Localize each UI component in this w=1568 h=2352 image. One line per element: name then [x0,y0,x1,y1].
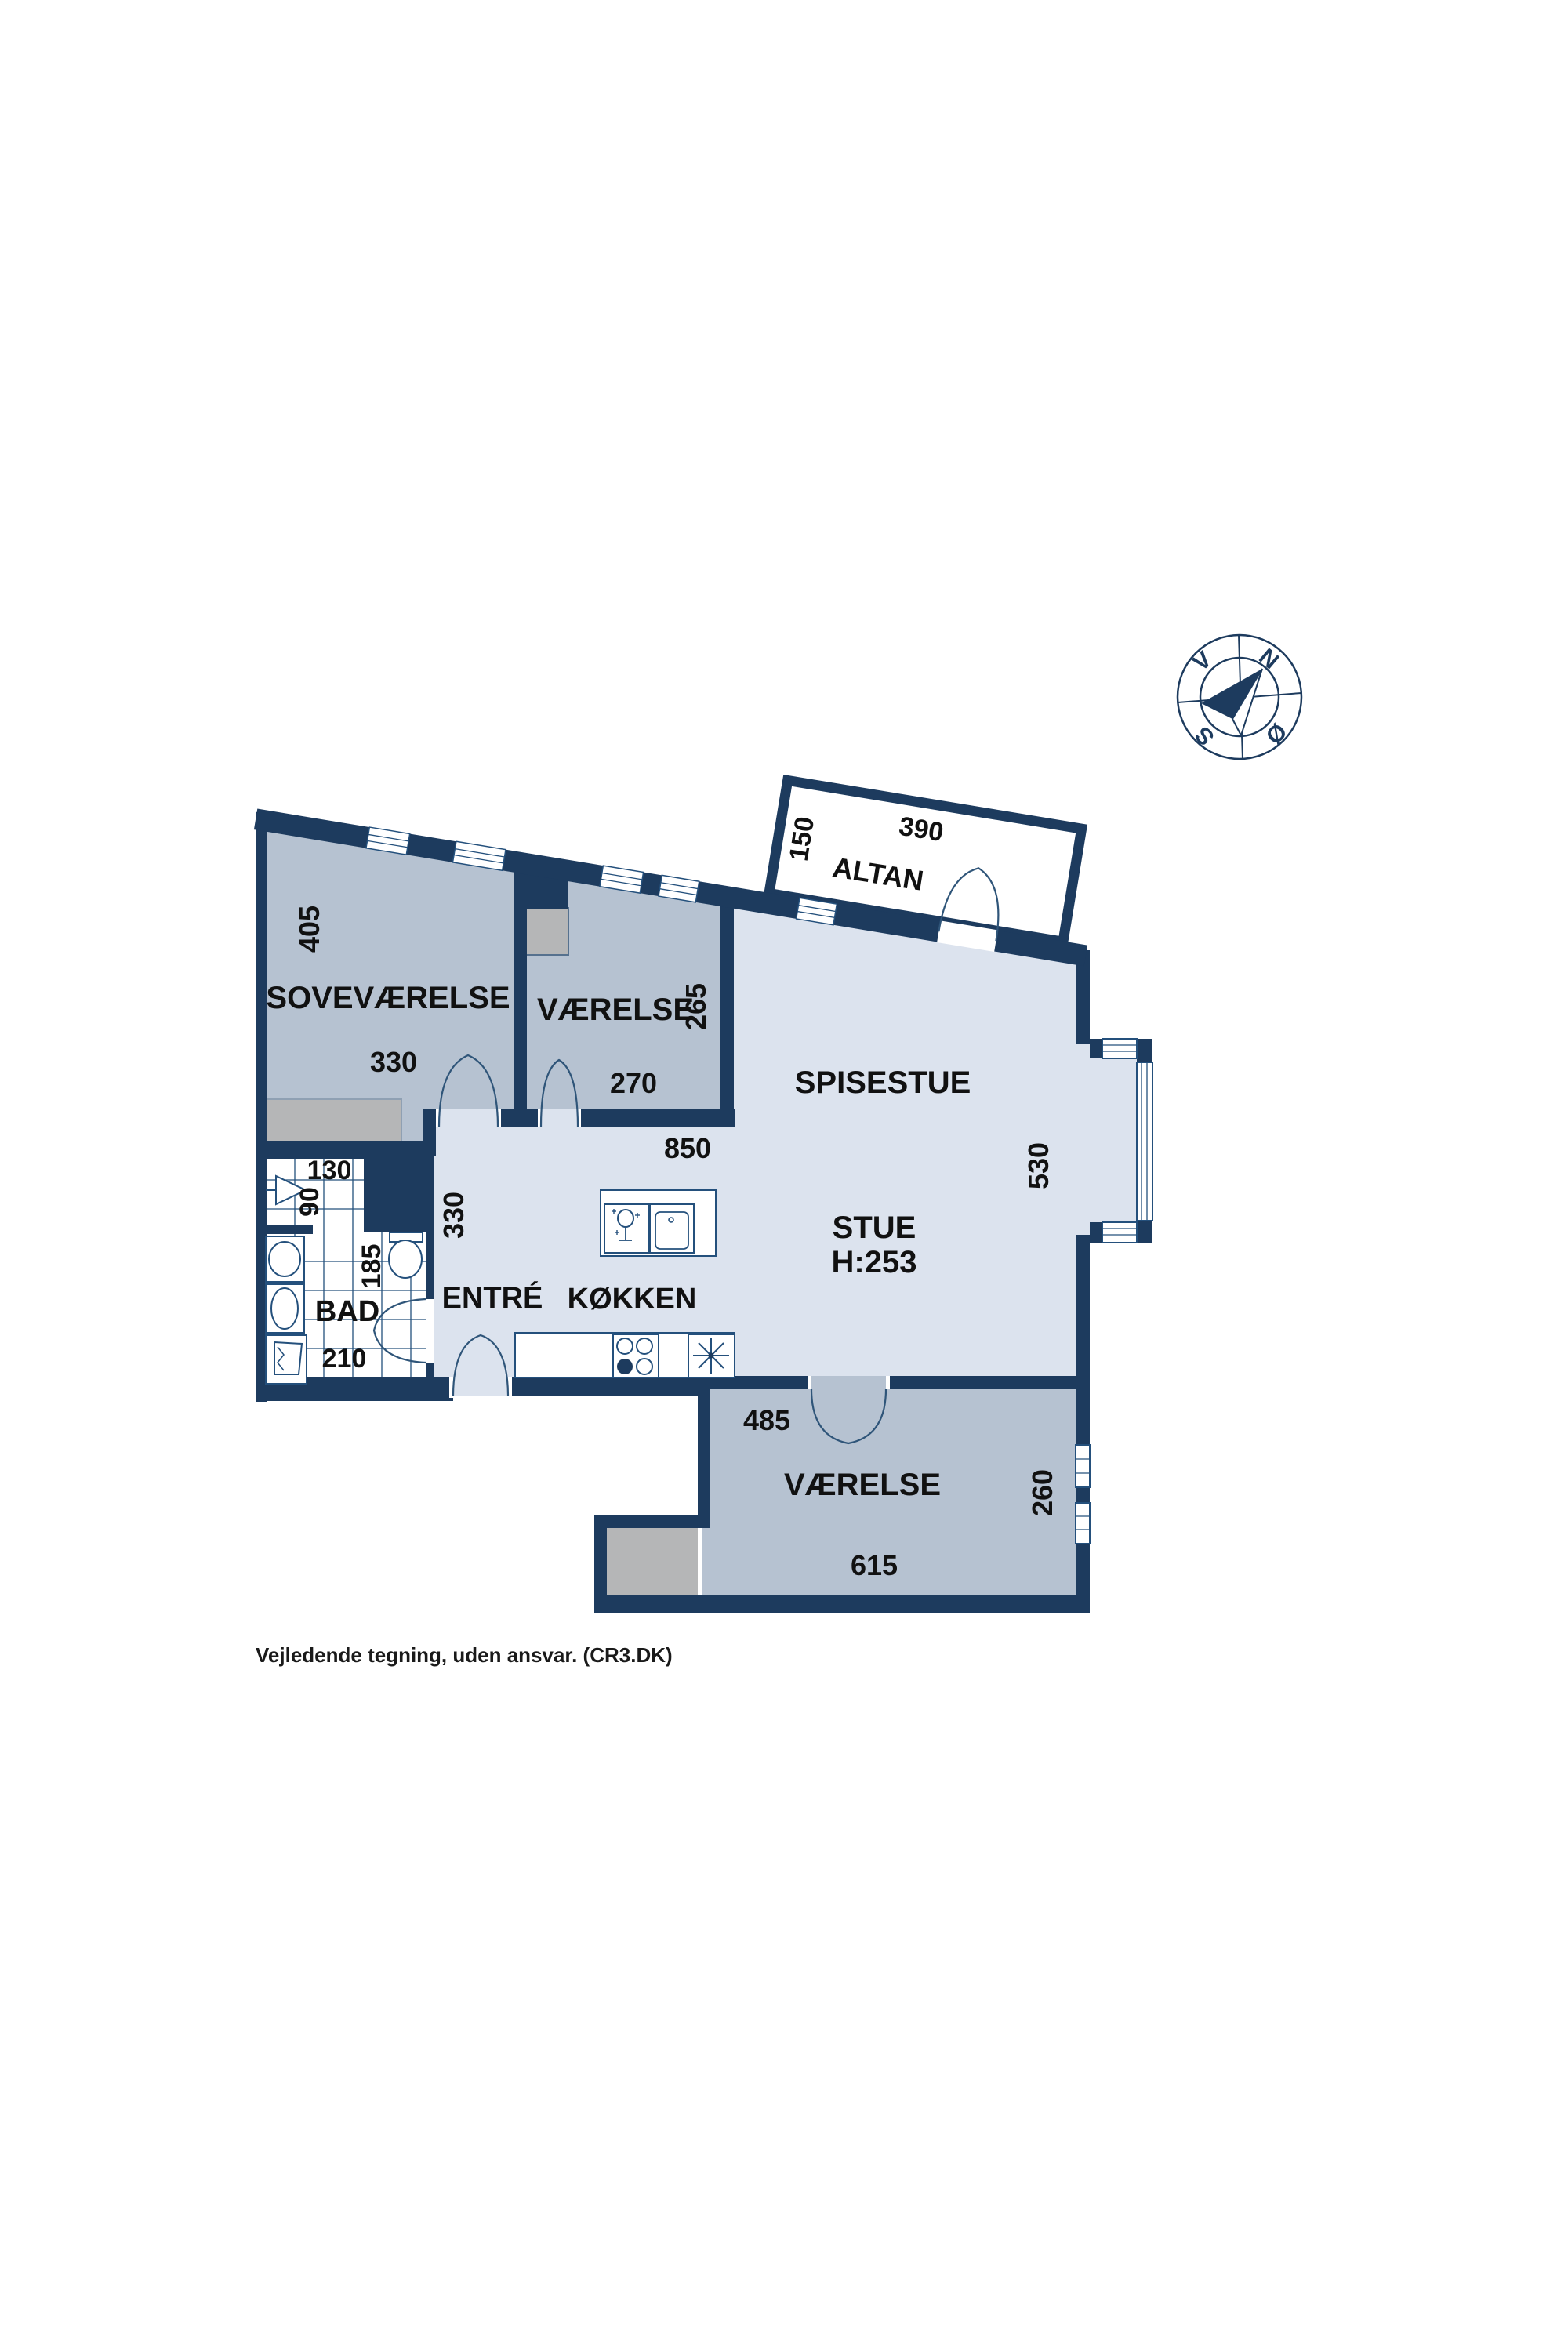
kitchen-island [601,1190,716,1256]
room-top-label: VÆRELSE [537,994,694,1025]
balcony-width-dim: 390 [897,813,945,846]
bathroom-niche-width-dim: 130 [307,1157,352,1184]
bedroom-wardrobe [267,1099,401,1143]
room-bottom-label: VÆRELSE [784,1469,941,1501]
room-bottom-depth-dim: 260 [1029,1469,1057,1516]
disclaimer-note: Vejledende tegning, uden ansvar. (CR3.DK… [256,1643,673,1668]
bathroom-width-dim: 185 [358,1244,385,1289]
bathroom-depth-dim: 210 [322,1345,367,1372]
bedroom-label: SOVEVÆRELSE [266,982,510,1014]
kitchen-label: KØKKEN [568,1284,697,1314]
livingroom-label: STUE [833,1212,916,1243]
livingroom-width-dim: 850 [664,1134,711,1163]
bathroom-label: BAD [315,1297,379,1327]
hall-depth-dim: 330 [440,1192,468,1239]
room-top-wardrobe [524,908,568,955]
floorplan-page: 405 SOVEVÆRELSE 330 VÆRELSE 265 270 SPIS… [0,0,1568,2352]
room-top-depth-dim: 265 [682,983,710,1030]
livingroom-depth-dim: 530 [1025,1142,1053,1189]
kitchen-counter [515,1333,735,1377]
diningroom-label: SPISESTUE [795,1067,971,1098]
hall-label: ENTRÉ [442,1283,543,1313]
bedroom-width-dim: 330 [370,1048,417,1076]
bedroom-depth-dim: 405 [296,906,324,953]
room-bottom-closet [607,1528,698,1597]
room-bottom-width-bottom-dim: 615 [851,1552,898,1580]
floorplan-drawing [0,0,1568,2352]
livingroom-height-note: H:253 [832,1247,917,1278]
bathroom-niche-depth-dim: 90 [296,1187,323,1217]
room-bottom-width-top-dim: 485 [743,1406,790,1435]
balcony-depth-dim: 150 [786,815,818,862]
room-top-width-dim: 270 [610,1069,657,1098]
